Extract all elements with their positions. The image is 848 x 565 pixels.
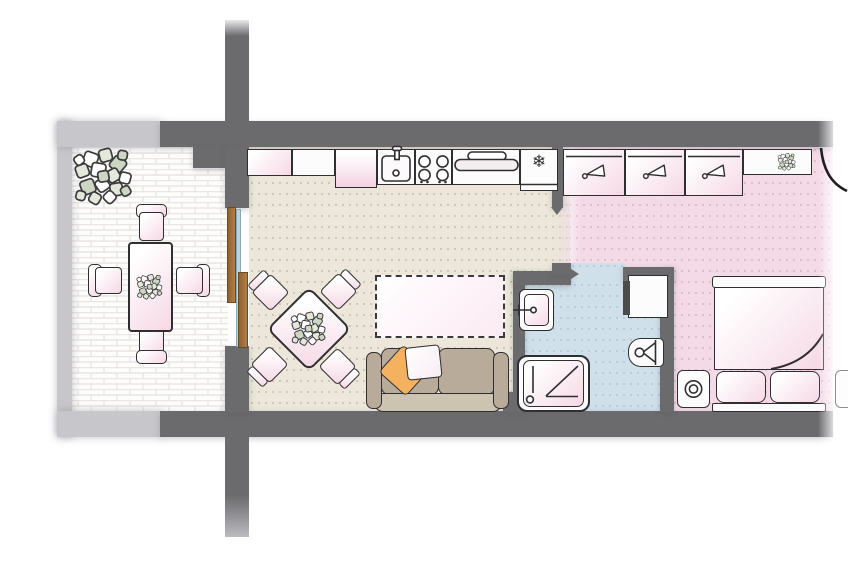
entry-door-arc — [0, 0, 848, 565]
floor-plan: ❄ — [0, 0, 848, 565]
nightstand-right-partial — [835, 370, 848, 408]
